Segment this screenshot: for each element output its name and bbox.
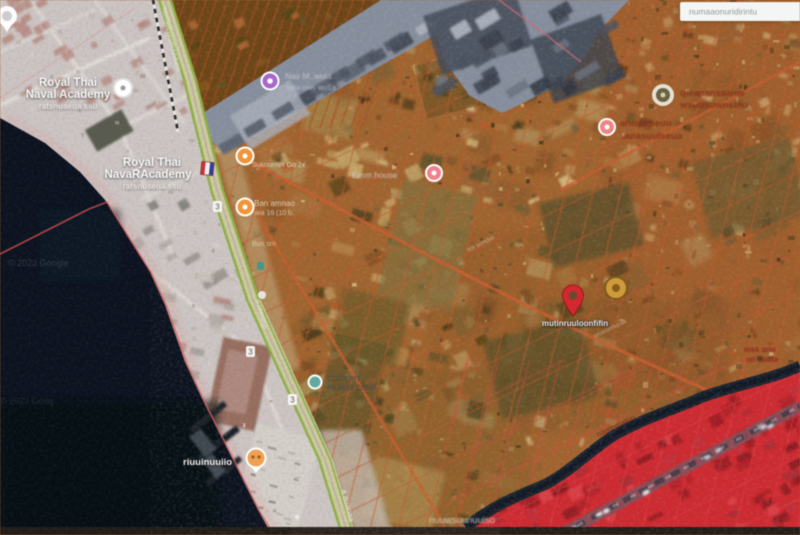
svg-text:ratsnuseua ssu: ratsnuseua ssu <box>39 102 98 111</box>
svg-text:wsa anu: wsa anu <box>743 345 776 354</box>
svg-text:COCKPIT: COCKPIT <box>327 374 361 383</box>
svg-text:PA3610 ZONE: PA3610 ZONE <box>327 383 376 392</box>
svg-text:riuuinuuiio: riuuinuuiio <box>183 457 232 468</box>
svg-text:nuuwsuunuuiso: nuuwsuunuuiso <box>429 515 495 526</box>
svg-text:Royal Thai: Royal Thai <box>123 157 181 169</box>
svg-text:Emm house: Emm house <box>352 170 398 180</box>
svg-text:Royal Thai: Royal Thai <box>39 77 97 89</box>
svg-text:Bun srn: Bun srn <box>252 241 276 248</box>
svg-text:wia 16 (10 u.: wia 16 (10 u. <box>253 210 294 217</box>
svg-text:3: 3 <box>215 203 220 212</box>
svg-text:wsuusownslnu: wsuusownslnu <box>679 100 748 111</box>
svg-text:Ban amnao: Ban amnao <box>254 199 295 208</box>
svg-text:anuawseuu: anuawseuu <box>620 118 672 129</box>
svg-text:3: 3 <box>290 396 295 405</box>
svg-text:nsw ows wu1a: nsw ows wu1a <box>287 83 337 92</box>
svg-text:ratsnuseua ssu: ratsnuseua ssu <box>123 182 182 191</box>
svg-text:Naval Academy: Naval Academy <box>26 89 111 101</box>
svg-text:numaaonuridirintu: numaaonuridirintu <box>689 7 757 17</box>
svg-text:mutinruuloonfifin: mutinruuloonfifin <box>542 319 608 328</box>
svg-text:NavaRAcademy: NavaRAcademy <box>105 169 193 181</box>
svg-text:auiasuulseua: auiasuulseua <box>622 131 683 142</box>
svg-text:Nav M..wuia: Nav M..wuia <box>285 71 332 81</box>
svg-text:3: 3 <box>248 348 253 357</box>
svg-text:nn asela: nn asela <box>746 355 779 364</box>
svg-text:qwananssanw: qwananssanw <box>680 88 745 99</box>
svg-text:Suknumvit Go 2x: Suknumvit Go 2x <box>252 162 306 169</box>
